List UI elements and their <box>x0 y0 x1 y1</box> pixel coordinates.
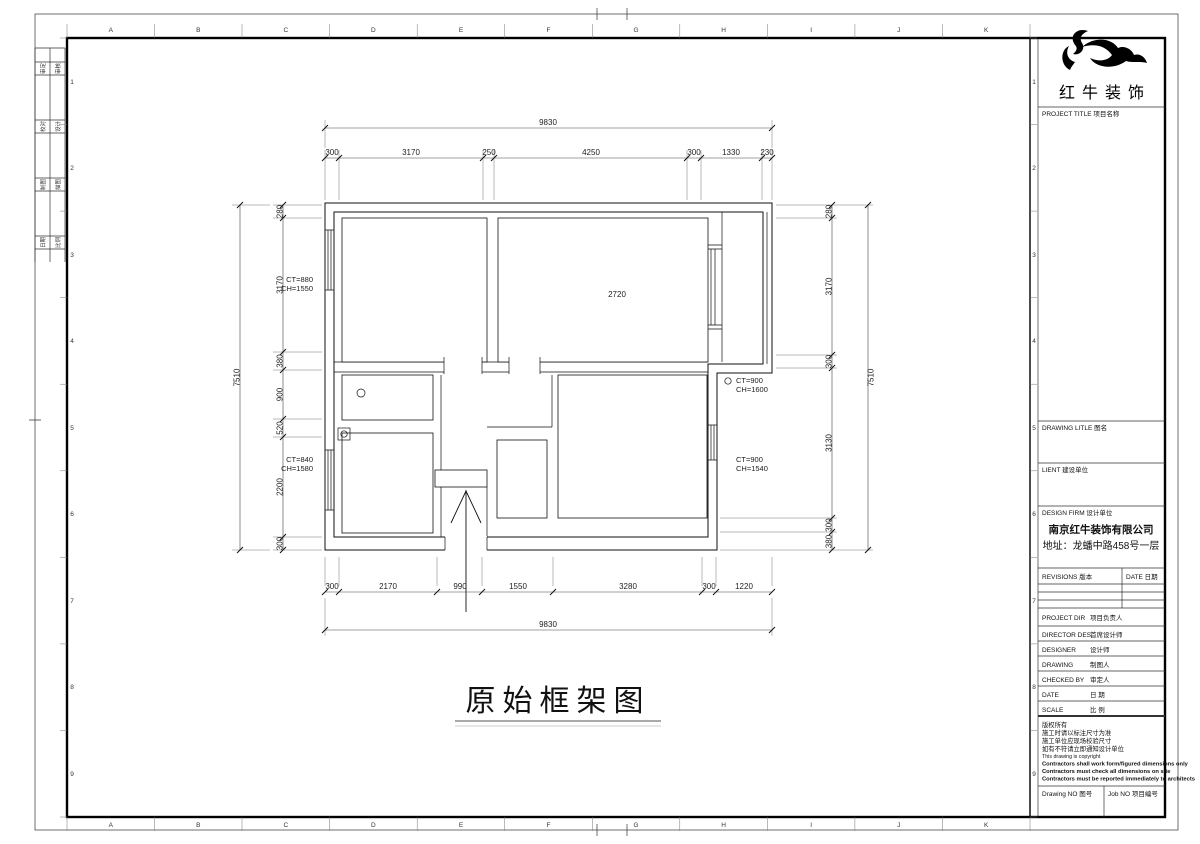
grid-letter: A <box>109 27 114 34</box>
dim-value: 1330 <box>722 148 740 157</box>
revisions-label: REVISIONS 版本 <box>1042 572 1093 581</box>
signoff-cell: 校对 <box>39 121 47 133</box>
window-label: CT=900 <box>736 376 763 385</box>
grid-letter: F <box>547 27 551 34</box>
dimension-lines <box>237 125 871 633</box>
room-bottom-left <box>342 433 433 533</box>
dim-value: 3170 <box>402 148 420 157</box>
grid-number: 9 <box>1032 771 1036 778</box>
dim-value: 300 <box>276 536 285 550</box>
grid-letter: D <box>371 822 376 829</box>
grid-number: 4 <box>70 338 74 345</box>
grid-letter: A <box>109 822 114 829</box>
room-bottom-mid <box>497 440 547 518</box>
page-title: 原始框架图 <box>466 685 651 718</box>
window-marker <box>725 378 731 384</box>
dim-value: 300 <box>702 582 716 591</box>
grid-letter: B <box>196 822 200 829</box>
room-mid-left <box>342 375 433 420</box>
signoff-cell: 审核 <box>54 63 62 75</box>
grid-letter: J <box>897 27 900 34</box>
dim-value: 4250 <box>582 148 600 157</box>
grid-number: 5 <box>1032 425 1036 432</box>
note-line: 如有不符请立即通知设计单位 <box>1042 744 1125 753</box>
window-label: CT=900 <box>736 455 763 464</box>
window-label: CH=1600 <box>736 385 768 394</box>
cad-sheet: 审定 审核 校对 设计 制图 描图 日期 比例 A B C D E F G H … <box>0 0 1200 844</box>
checked-by-label: CHECKED BY <box>1042 677 1085 684</box>
signoff-cell: 比例 <box>54 237 62 249</box>
balcony-walls <box>708 212 767 364</box>
grid-number: 7 <box>70 598 74 605</box>
dim-value: 300 <box>687 148 701 157</box>
extension-lines <box>232 120 873 636</box>
project-dir-cn: 项目负责人 <box>1090 613 1123 622</box>
dim-value: 380 <box>825 534 834 548</box>
grid-letter: G <box>633 27 638 34</box>
dim-value: 2170 <box>379 582 397 591</box>
title-block: 红牛装饰 PROJECT TITLE 项目名称 DRAWING LITLE 图名… <box>1038 30 1195 817</box>
dim-value: 300 <box>325 582 339 591</box>
dim-value: 250 <box>482 148 496 157</box>
room-area-label: 2720 <box>608 290 626 299</box>
dim-total-left: 7510 <box>233 368 242 386</box>
dim-value: 300 <box>825 518 834 532</box>
signoff-cell: 描图 <box>54 179 62 191</box>
grid-letter: C <box>284 822 289 829</box>
dim-value: 1220 <box>735 582 753 591</box>
grid-letter: H <box>721 822 726 829</box>
firm-address: 地址：龙蟠中路458号一层 <box>1043 539 1160 552</box>
copyright-notes: 版权所有 施工时请以标注尺寸为准 施工单位应现场校验尺寸 如有不符请立即通知设计… <box>1042 720 1195 783</box>
design-firm-label: DESIGN FIRM 设计单位 <box>1042 508 1113 517</box>
dim-value: 2200 <box>276 478 285 496</box>
dimension-text: 9830 300 3170 250 4250 300 1330 230 300 … <box>233 118 876 629</box>
grid-letter: I <box>810 27 812 34</box>
grid-letter: D <box>371 27 376 34</box>
room-top-right <box>498 218 708 362</box>
designer-cn: 设计师 <box>1090 645 1110 654</box>
grid-letter: G <box>633 822 638 829</box>
room-top-left <box>342 218 487 362</box>
grid-number: 7 <box>1032 598 1036 605</box>
director-label: DIRECTOR DES <box>1042 632 1092 639</box>
grid-number: 3 <box>1032 252 1036 259</box>
dim-value: 520 <box>276 421 285 435</box>
window-label: CH=1580 <box>281 464 313 473</box>
dim-value: 990 <box>453 582 467 591</box>
entry-threshold <box>435 470 487 487</box>
grid-number: 8 <box>70 684 74 691</box>
note-line: 施工单位应现场校验尺寸 <box>1042 736 1111 745</box>
scale-label: SCALE <box>1042 707 1064 714</box>
date-col-label: DATE 日期 <box>1126 573 1158 581</box>
grid-number: 6 <box>1032 511 1036 518</box>
signoff-cell: 审定 <box>39 63 47 75</box>
grid-letter: K <box>984 27 989 34</box>
note-line: 版权所有 <box>1042 720 1067 729</box>
grid-letter: I <box>810 822 812 829</box>
grid-letter: H <box>721 27 726 34</box>
scale-cn: 比 例 <box>1090 705 1105 714</box>
director-cn: 首席设计师 <box>1090 630 1123 639</box>
dim-value: 280 <box>276 204 285 218</box>
drawing-title-label: DRAWING LITLE 图名 <box>1042 423 1107 432</box>
window-label: CH=1550 <box>281 284 313 293</box>
note-line: This drawing is copyright <box>1042 754 1101 760</box>
dim-value: 3170 <box>825 277 834 295</box>
grid-letter: B <box>196 27 200 34</box>
note-line: Contractors must check all dimensions on… <box>1042 769 1171 775</box>
grid-letter: E <box>459 27 464 34</box>
dim-value: 280 <box>825 204 834 218</box>
window-right <box>708 425 717 460</box>
grid-number: 1 <box>1032 79 1036 86</box>
grid-number: 8 <box>1032 684 1036 691</box>
client-label: LIENT 建设单位 <box>1042 465 1089 474</box>
window-label: CT=840 <box>286 455 313 464</box>
floor-plan <box>325 203 772 612</box>
checked-by-cn: 审定人 <box>1090 675 1110 684</box>
project-title-label: PROJECT TITLE 项目名称 <box>1042 109 1120 118</box>
grid-number: 3 <box>70 252 74 259</box>
dim-total-right: 7510 <box>867 368 876 386</box>
window-label: CH=1540 <box>736 464 768 473</box>
dim-value: 900 <box>276 387 285 401</box>
signoff-cell: 制图 <box>39 179 47 191</box>
date-label: DATE <box>1042 692 1060 699</box>
grid-number: 5 <box>70 425 74 432</box>
drawing-by-label: DRAWING <box>1042 662 1073 669</box>
room-bottom-right <box>558 375 707 518</box>
window-left-2 <box>325 450 334 510</box>
company-logo-icon <box>1062 30 1147 70</box>
grid-number: 4 <box>1032 338 1036 345</box>
grid-number: 9 <box>70 771 74 778</box>
grid-letter: J <box>897 822 900 829</box>
window-label: CT=880 <box>286 275 313 284</box>
dim-value: 300 <box>825 354 834 368</box>
note-line: Contractors shall work form/figured dime… <box>1042 762 1189 768</box>
dim-value: 3130 <box>825 434 834 452</box>
grid-letter: F <box>547 822 551 829</box>
designer-label: DESIGNER <box>1042 647 1076 654</box>
grid-number: 2 <box>1032 165 1036 172</box>
dim-value: 1550 <box>509 582 527 591</box>
grid-number: 1 <box>70 79 74 86</box>
note-line: 施工时请以标注尺寸为准 <box>1042 728 1111 737</box>
job-no-label: Job NO 项目编号 <box>1108 789 1158 798</box>
grid-number: 2 <box>70 165 74 172</box>
grid-letter: C <box>284 27 289 34</box>
drawing-no-label: Drawing NO 图号 <box>1042 790 1093 798</box>
dim-value: 3280 <box>619 582 637 591</box>
firm-name: 南京红牛装饰有限公司 <box>1049 523 1154 536</box>
project-dir-label: PROJECT DIR <box>1042 615 1086 622</box>
window-left-1 <box>325 230 334 290</box>
grid-letter: E <box>459 822 464 829</box>
dim-total-top: 9830 <box>539 118 557 127</box>
drawing-by-cn: 制图人 <box>1090 660 1110 669</box>
note-line: Contractors must be reported immediately… <box>1042 777 1195 783</box>
dim-value: 300 <box>325 148 339 157</box>
grid-letter: K <box>984 822 989 829</box>
sheet-svg: 审定 审核 校对 设计 制图 描图 日期 比例 A B C D E F G H … <box>0 0 1200 844</box>
dim-total-bottom: 9830 <box>539 620 557 629</box>
grid-number: 6 <box>70 511 74 518</box>
dim-value: 380 <box>276 354 285 368</box>
signoff-cell: 设计 <box>54 121 62 133</box>
signoff-strip: 审定 审核 校对 设计 制图 描图 日期 比例 <box>35 48 65 262</box>
dim-value: 230 <box>760 148 774 157</box>
company-logo-text: 红牛装饰 <box>1059 84 1151 102</box>
signoff-cell: 日期 <box>40 237 47 249</box>
date-cn: 日 期 <box>1090 691 1105 699</box>
